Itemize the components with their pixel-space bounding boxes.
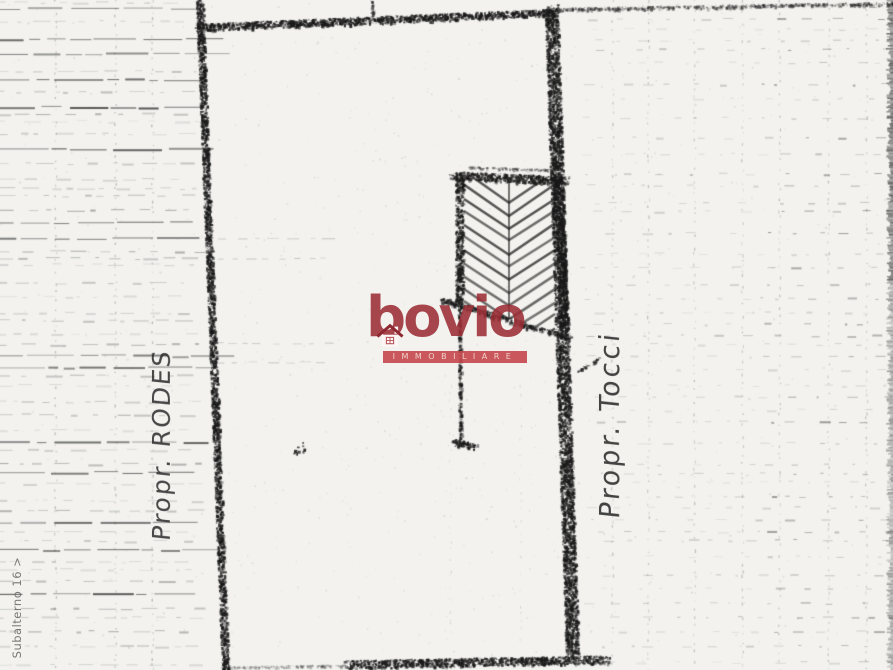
owner-label-tocci: Propr. Tocci [595,283,629,567]
agency-watermark: bovio IMMOBILIARE [366,296,532,368]
house-icon [375,323,405,350]
brand-banner: IMMOBILIARE [383,351,527,363]
owner-label-rodes: Propr. RODES [147,323,177,566]
scanned-cadastral-plan: Propr. RODES Propr. Tocci Subalterno 16 … [0,0,893,670]
subalterno-note: Subalterno 16 > [10,550,25,665]
